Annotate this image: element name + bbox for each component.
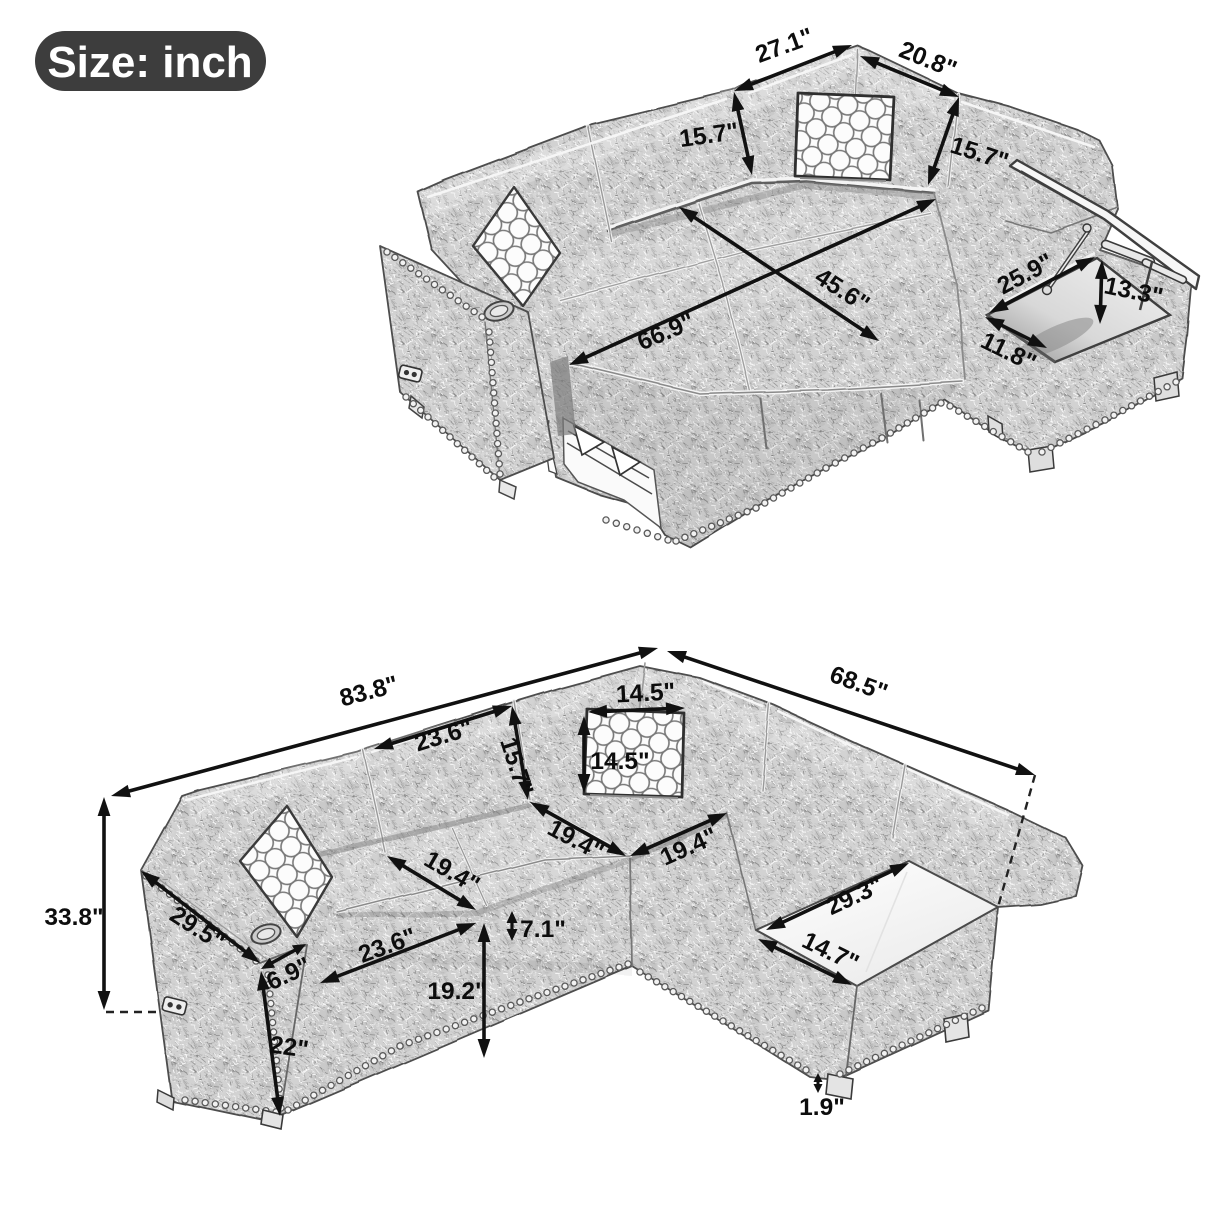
svg-text:19.2": 19.2" xyxy=(427,978,486,1005)
svg-text:1.9": 1.9" xyxy=(799,1094,845,1121)
svg-text:7.1": 7.1" xyxy=(520,916,566,943)
svg-text:33.8": 33.8" xyxy=(44,904,103,931)
svg-text:14.5": 14.5" xyxy=(590,748,649,775)
svg-text:22": 22" xyxy=(268,1031,310,1063)
svg-text:14.5": 14.5" xyxy=(615,678,676,708)
svg-text:Size: inch: Size: inch xyxy=(47,38,252,87)
